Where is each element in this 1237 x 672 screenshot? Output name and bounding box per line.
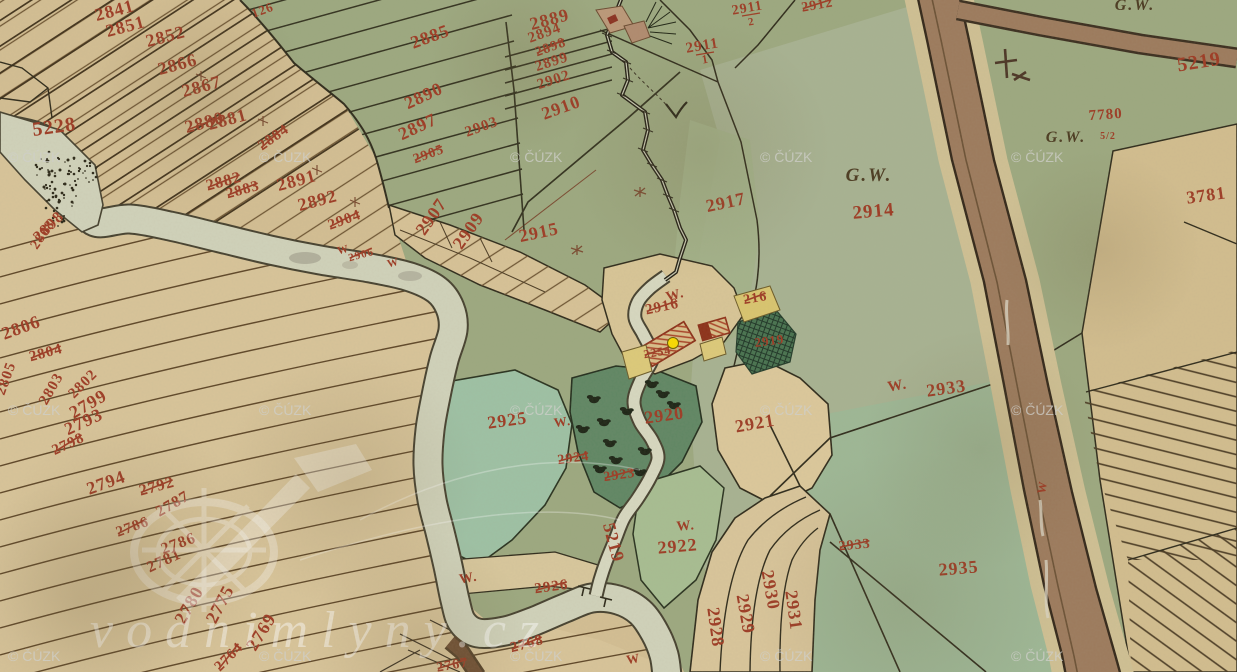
- svg-text:© ČÚZK: © ČÚZK: [510, 149, 563, 165]
- svg-text:© ČÚZK: © ČÚZK: [259, 149, 312, 165]
- svg-text:© ČÚZK: © ČÚZK: [760, 648, 813, 664]
- svg-text:© ČÚZK: © ČÚZK: [1011, 149, 1064, 165]
- svg-text:© ČÚZK: © ČÚZK: [510, 648, 563, 664]
- svg-text:© ČÚZK: © ČÚZK: [1011, 402, 1064, 418]
- svg-text:© ČÚZK: © ČÚZK: [259, 402, 312, 418]
- svg-text:© ČÚZK: © ČÚZK: [760, 149, 813, 165]
- svg-text:© ČÚZK: © ČÚZK: [8, 648, 61, 664]
- svg-text:© ČÚZK: © ČÚZK: [1011, 648, 1064, 664]
- svg-text:© ČÚZK: © ČÚZK: [8, 402, 61, 418]
- svg-text:© ČÚZK: © ČÚZK: [259, 648, 312, 664]
- svg-text:© ČÚZK: © ČÚZK: [510, 402, 563, 418]
- svg-text:© ČÚZK: © ČÚZK: [760, 402, 813, 418]
- svg-text:© ČÚZK: © ČÚZK: [8, 149, 61, 165]
